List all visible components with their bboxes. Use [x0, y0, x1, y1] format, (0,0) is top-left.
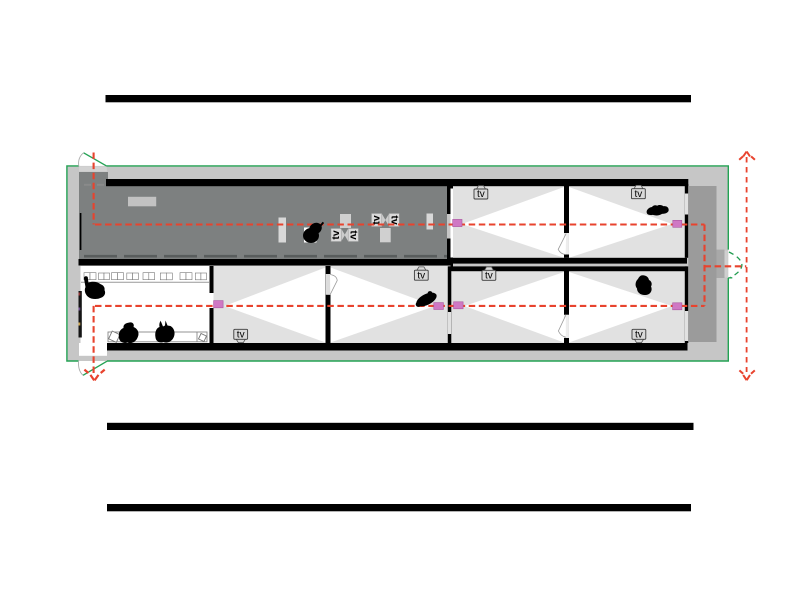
svg-text:tv: tv — [330, 230, 342, 239]
svg-text:tv: tv — [237, 330, 245, 341]
svg-text:tv: tv — [635, 189, 643, 200]
svg-text:tv: tv — [370, 215, 382, 224]
svg-text:tv: tv — [635, 330, 643, 341]
svg-text:tv: tv — [348, 230, 360, 239]
svg-text:tv: tv — [388, 215, 400, 224]
svg-text:tv: tv — [417, 270, 425, 281]
svg-text:tv: tv — [477, 189, 485, 200]
svg-text:tv: tv — [485, 271, 493, 282]
